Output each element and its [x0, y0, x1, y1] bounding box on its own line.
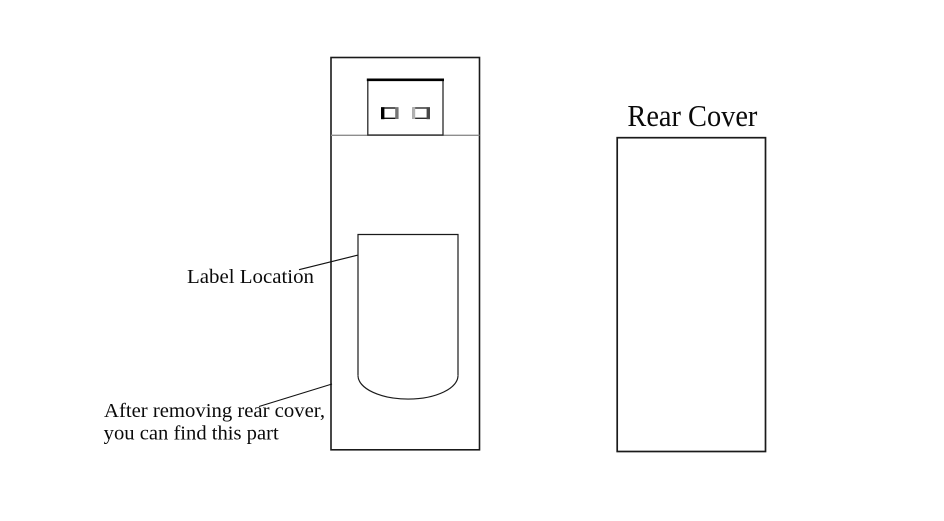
svg-text:you can find this part: you can find this part	[104, 424, 280, 445]
svg-text:Rear Cover: Rear Cover	[627, 99, 757, 133]
svg-text:Label Location: Label Location	[187, 267, 314, 288]
svg-text:After removing rear cover,: After removing rear cover,	[104, 401, 325, 422]
